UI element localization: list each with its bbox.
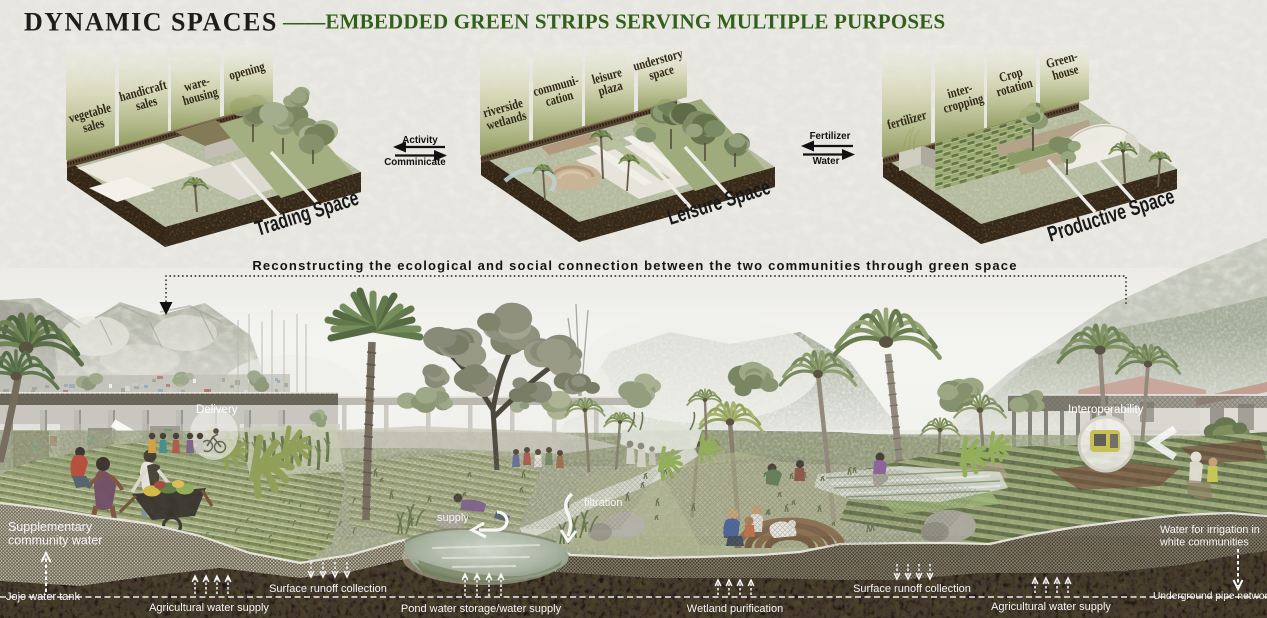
svg-text:Fertilizer: Fertilizer (810, 131, 851, 142)
svg-text:Comminicate: Comminicate (384, 157, 446, 168)
svg-text:——EMBEDDED GREEN STRIPS SERVIN: ——EMBEDDED GREEN STRIPS SERVING MULTIPLE… (282, 10, 945, 34)
svg-text:Activity: Activity (402, 135, 438, 146)
svg-text:Reconstructing the ecological: Reconstructing the ecological and social… (252, 258, 1017, 273)
svg-text:DYNAMIC SPACES: DYNAMIC SPACES (24, 8, 278, 37)
svg-text:Water: Water (813, 156, 840, 167)
